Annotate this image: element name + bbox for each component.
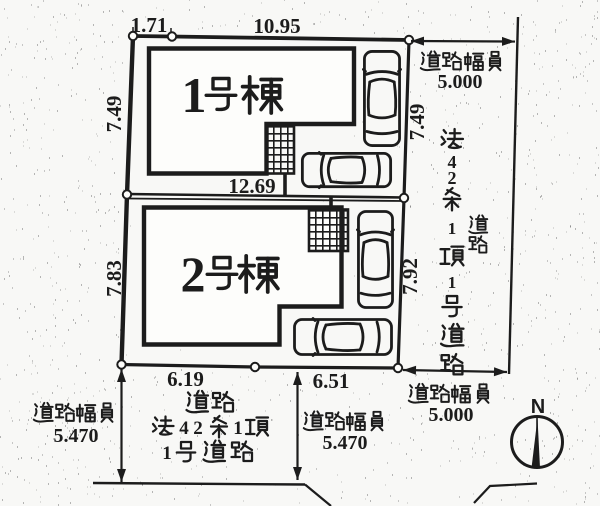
svg-text:5.000: 5.000 <box>438 71 483 93</box>
svg-text:1.71: 1.71 <box>131 13 168 37</box>
svg-text:N: N <box>531 396 545 418</box>
svg-text:7.49: 7.49 <box>102 96 126 133</box>
svg-text:7.92: 7.92 <box>398 258 422 295</box>
svg-text:1: 1 <box>162 443 172 464</box>
svg-text:1: 1 <box>233 418 243 439</box>
svg-text:2: 2 <box>193 418 203 439</box>
svg-text:2: 2 <box>181 246 206 302</box>
svg-text:7.83: 7.83 <box>102 260 126 297</box>
svg-text:7.49: 7.49 <box>405 104 429 141</box>
svg-text:2: 2 <box>448 168 457 188</box>
svg-text:4: 4 <box>179 418 189 439</box>
svg-text:5.470: 5.470 <box>323 432 368 454</box>
svg-text:5.470: 5.470 <box>54 425 99 447</box>
svg-text:1: 1 <box>448 273 457 292</box>
svg-text:1: 1 <box>182 67 207 123</box>
svg-text:6.19: 6.19 <box>167 367 204 391</box>
svg-text:1: 1 <box>448 219 457 238</box>
svg-text:6.51: 6.51 <box>313 369 350 393</box>
svg-text:12.69: 12.69 <box>228 174 275 198</box>
svg-text:5.000: 5.000 <box>429 404 474 426</box>
svg-text:10.95: 10.95 <box>253 14 300 38</box>
